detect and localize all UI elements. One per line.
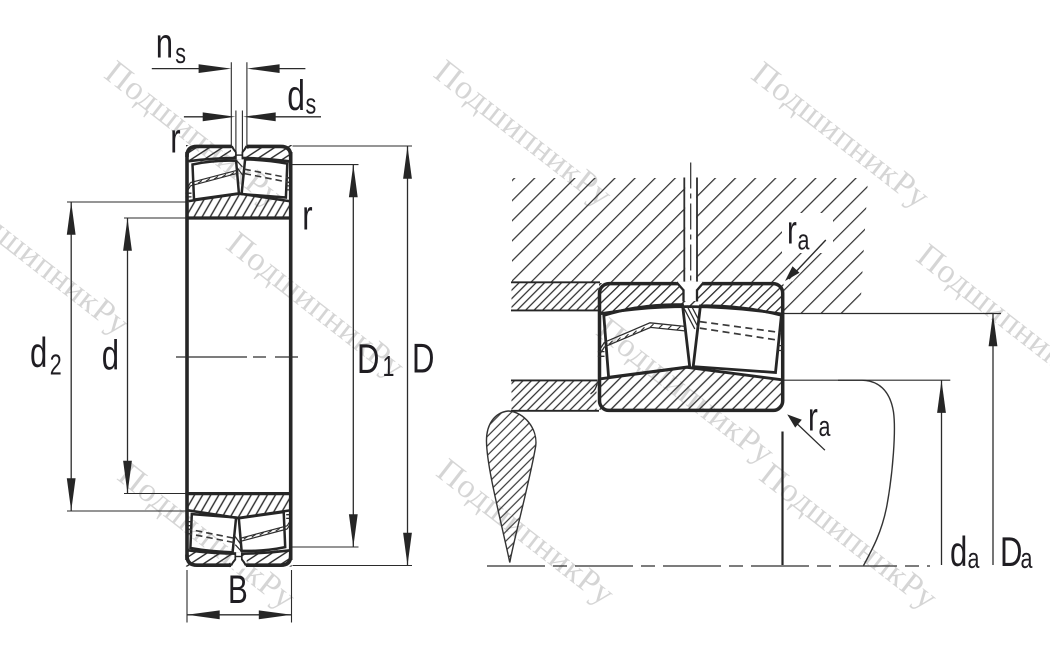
svg-text:r: r: [170, 115, 180, 162]
svg-text:a: a: [1021, 543, 1034, 575]
svg-text:a: a: [968, 543, 981, 575]
svg-text:B: B: [228, 568, 248, 612]
svg-text:s: s: [306, 88, 317, 120]
svg-text:a: a: [819, 411, 832, 443]
svg-text:ПодшипникРу: ПодшипникРу: [0, 182, 137, 343]
svg-text:a: a: [798, 224, 811, 256]
svg-text:r: r: [787, 208, 797, 252]
svg-text:D: D: [357, 335, 379, 382]
svg-text:r: r: [808, 395, 818, 439]
svg-text:ПодшипникРу: ПодшипникРу: [910, 237, 1050, 398]
svg-text:n: n: [156, 20, 173, 67]
svg-text:1: 1: [383, 351, 395, 383]
svg-text:D: D: [1000, 528, 1022, 575]
svg-text:d: d: [950, 528, 967, 575]
svg-text:d: d: [102, 332, 119, 379]
svg-text:d: d: [287, 72, 305, 120]
svg-text:D: D: [412, 335, 434, 382]
svg-text:d: d: [30, 329, 47, 376]
svg-text:2: 2: [50, 349, 62, 381]
svg-text:r: r: [302, 192, 312, 239]
svg-text:s: s: [175, 38, 186, 70]
